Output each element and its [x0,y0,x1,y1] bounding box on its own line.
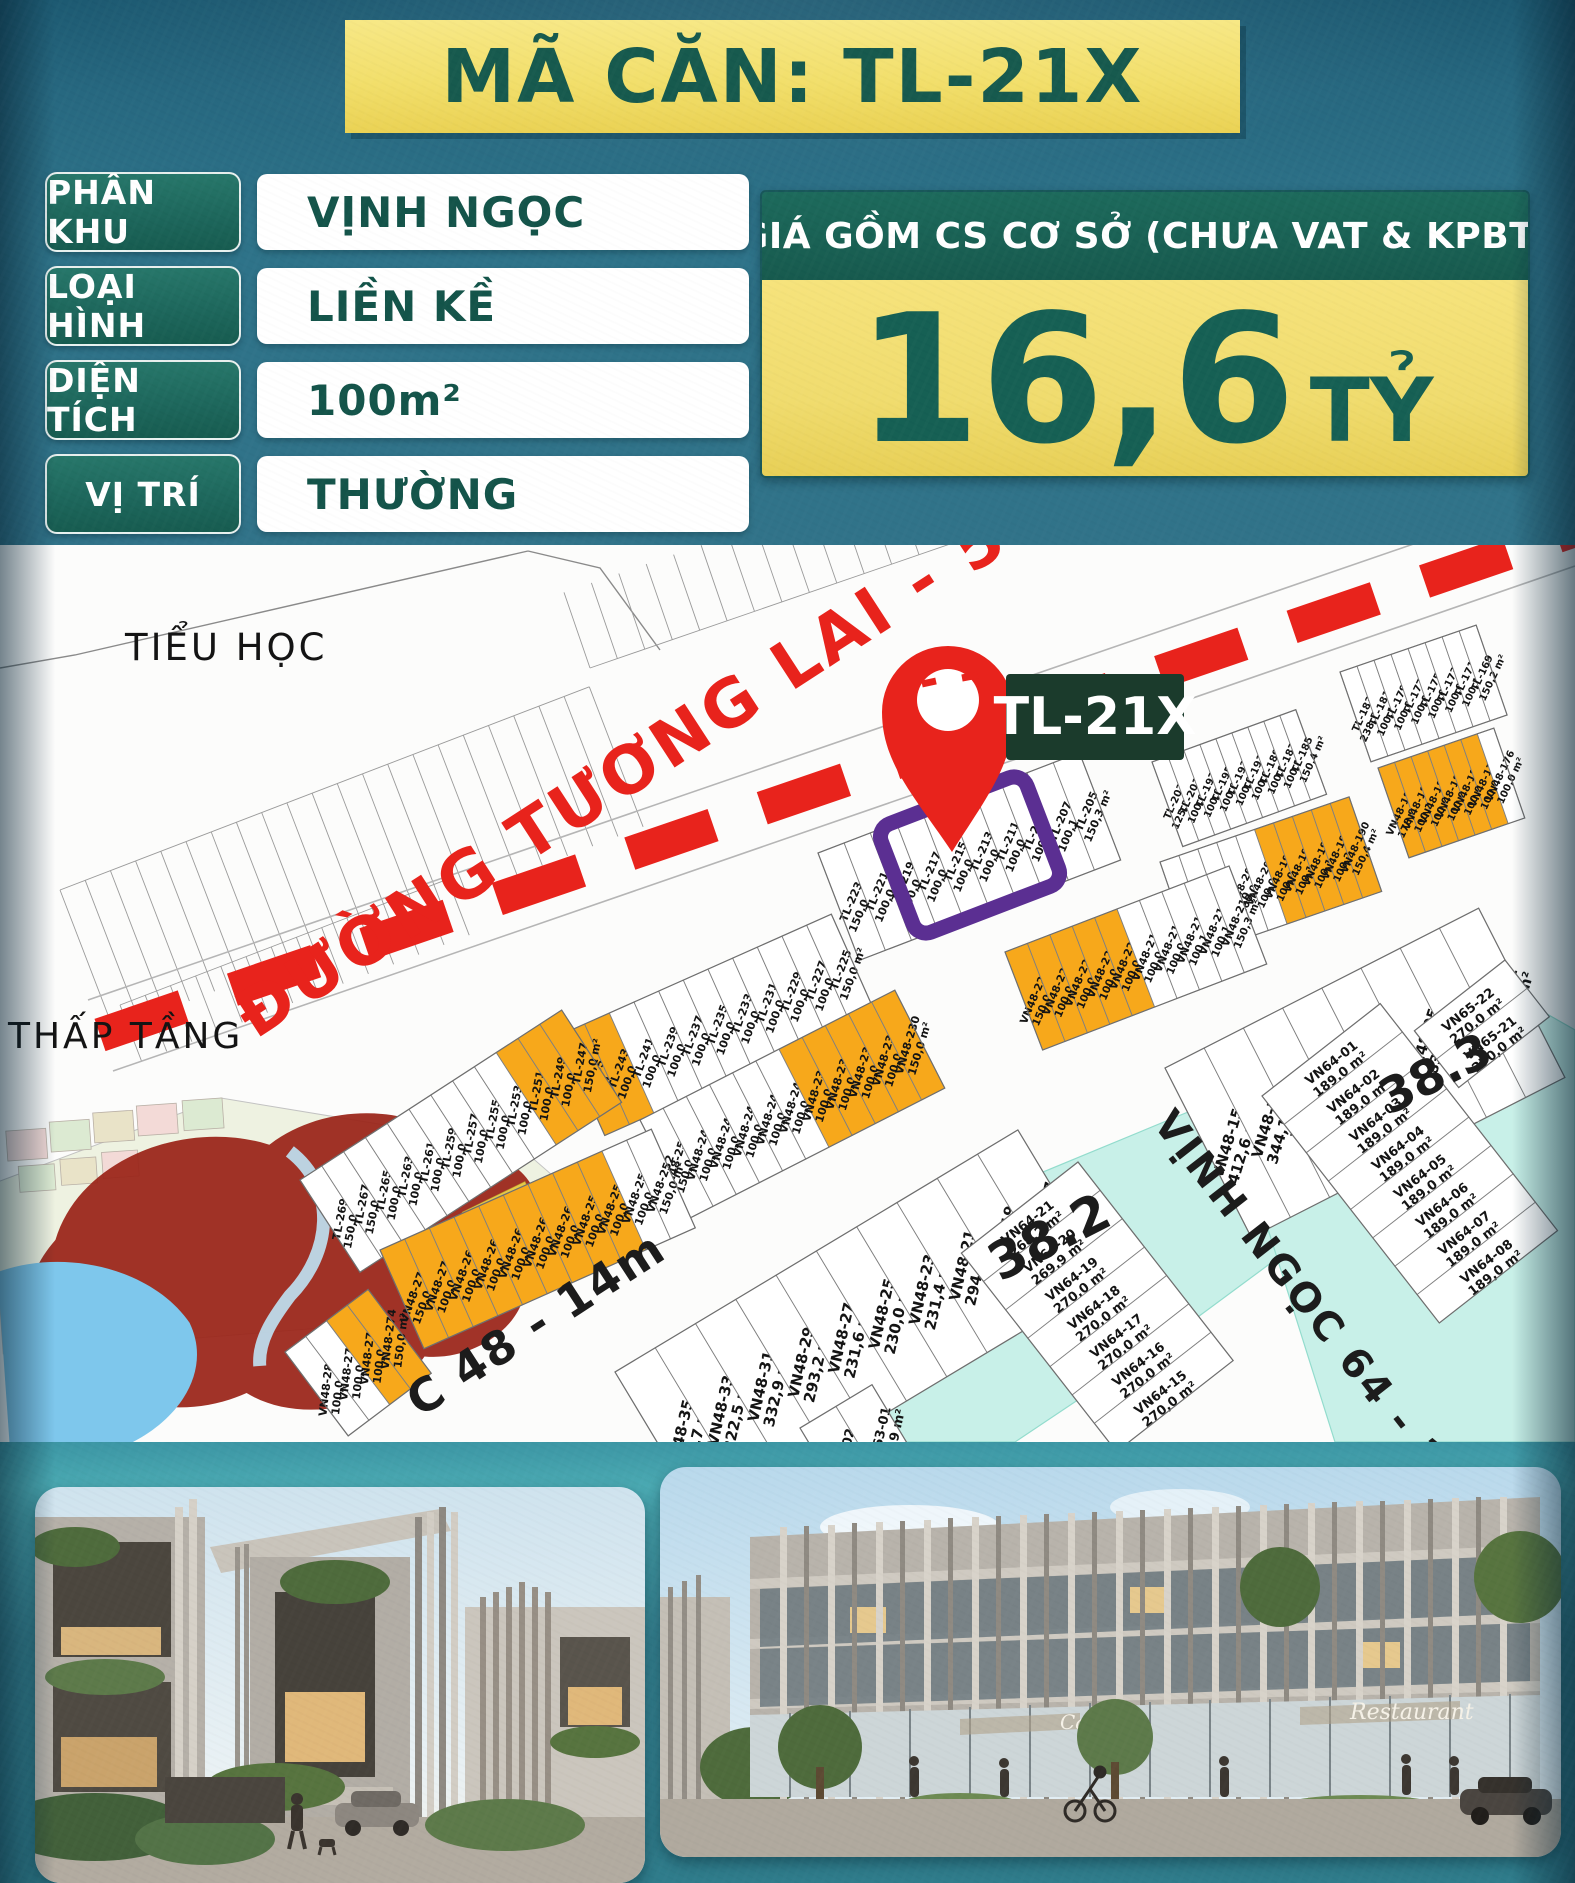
price-unit: TỶ [1310,359,1434,462]
info-label: VỊ TRÍ [45,454,241,534]
site-plan-map: TIỂU HỌC TL-183238,5 m²TL-181100,1 m²TL-… [0,545,1575,1442]
rendering-townhouses [35,1487,645,1883]
info-label: DIỆN TÍCH [45,360,241,440]
info-value: LIỀN KỀ [257,268,749,344]
rendering-shophouses: Cafe Restaurant [660,1467,1561,1857]
unit-code-banner: MÃ CĂN: TL-21X [345,20,1240,133]
info-value: VỊNH NGỌC [257,174,749,250]
info-value: THƯỜNG [257,456,749,532]
info-row-loai-hinh: LOẠI HÌNH LIỀN KỀ [45,266,745,346]
low-rise-label: THẤP TẦNG [7,1011,243,1057]
info-row-vi-tri: VỊ TRÍ THƯỜNG [45,454,745,534]
info-label: LOẠI HÌNH [45,266,241,346]
pin-label: TL-21X [994,674,1197,760]
info-table: PHÂN KHU VỊNH NGỌC LOẠI HÌNH LIỀN KỀ DIỆ… [45,172,745,548]
price-body: 16,6 TỶ [762,280,1528,478]
info-value: 100m² [257,362,749,438]
pin-label-text: TL-21X [994,687,1197,747]
price-card: GIÁ GỒM CS CƠ SỞ (CHƯA VAT & KPBT) 16,6 … [760,190,1530,478]
school-label: TIỂU HỌC [124,621,328,669]
unit-code-title: MÃ CĂN: TL-21X [442,34,1144,120]
restaurant-sign: Restaurant [1349,1700,1474,1725]
info-row-phan-khu: PHÂN KHU VỊNH NGỌC [45,172,745,252]
info-row-dien-tich: DIỆN TÍCH 100m² [45,360,745,440]
price-header: GIÁ GỒM CS CƠ SỞ (CHƯA VAT & KPBT) [762,192,1528,280]
listing-flyer: MÃ CĂN: TL-21X PHÂN KHU VỊNH NGỌC LOẠI H… [0,0,1575,1883]
price-amount: 16,6 [857,280,1296,478]
street [660,1799,1561,1857]
info-label: PHÂN KHU [45,172,241,252]
